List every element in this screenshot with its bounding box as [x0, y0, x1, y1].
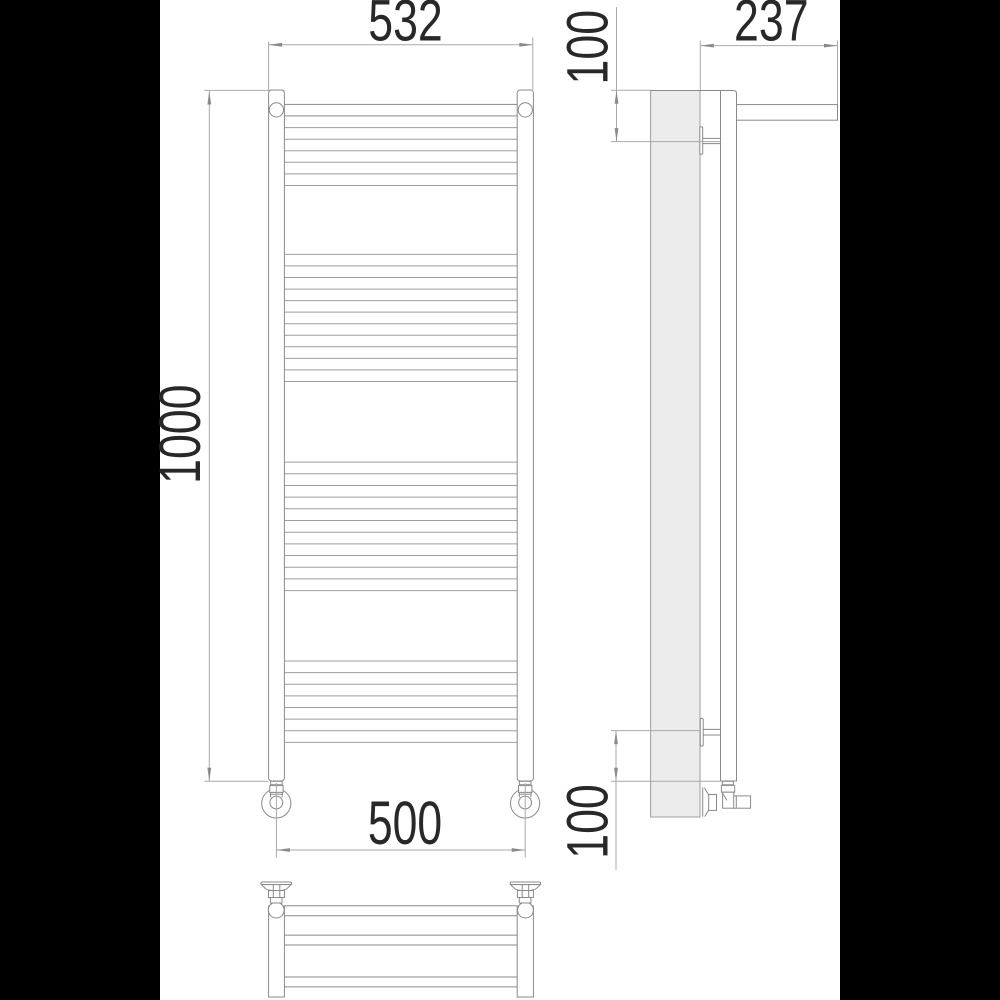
svg-text:1000: 1000 [147, 385, 212, 484]
svg-text:100: 100 [555, 10, 620, 84]
svg-text:100: 100 [555, 784, 620, 858]
svg-text:237: 237 [734, 0, 808, 53]
svg-text:500: 500 [368, 790, 442, 857]
svg-text:532: 532 [368, 0, 442, 53]
